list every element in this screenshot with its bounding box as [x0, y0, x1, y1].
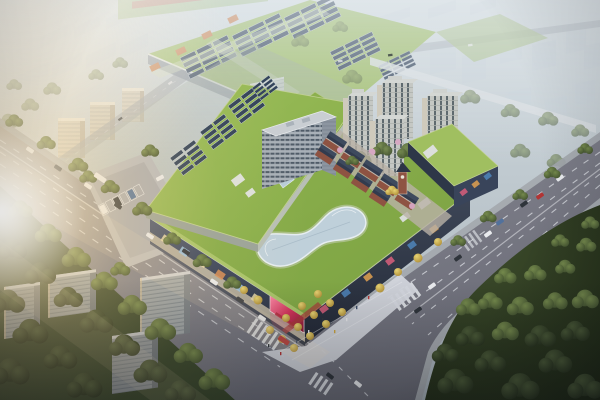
vignette	[0, 0, 600, 400]
aerial-rendering: Bird's-eye dusk rendering of a mixed-use…	[0, 0, 600, 400]
scene	[0, 0, 600, 400]
